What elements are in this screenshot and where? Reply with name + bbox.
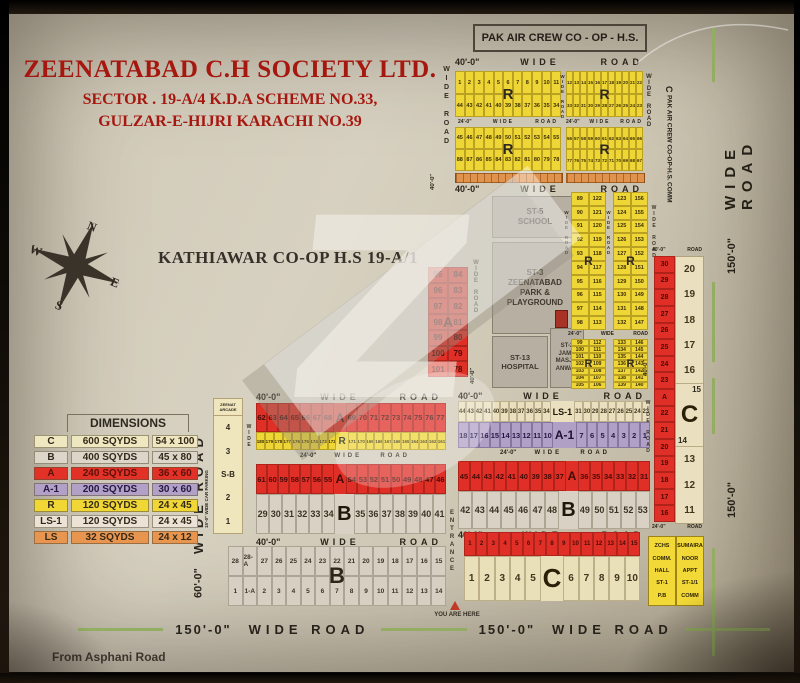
plot-cell: 65 bbox=[629, 127, 636, 149]
plot-cell: 133 bbox=[613, 339, 631, 346]
plot-cell: 74 bbox=[587, 149, 594, 171]
block-letter: B bbox=[559, 491, 577, 529]
text-line: ST-1 bbox=[649, 580, 675, 586]
plot-cell: 13 bbox=[676, 447, 703, 472]
plot-cell: 17 bbox=[469, 422, 480, 448]
plot-row: 5657585960616263646566 bbox=[566, 127, 643, 149]
plot-cell: 95 bbox=[428, 267, 448, 283]
plot-cell: 98 bbox=[571, 316, 589, 330]
road-150-vertical-top: 150'-0" bbox=[726, 214, 738, 274]
plot-cell: 56 bbox=[566, 127, 573, 149]
road-word: ROAD bbox=[535, 119, 558, 125]
plot-cell: 172 bbox=[328, 432, 337, 450]
comm-text: PAK AIR CREW CO-OP-H.S. bbox=[666, 95, 673, 181]
plot-cell: 41 bbox=[506, 461, 518, 491]
r-quadrant-1: 89909192939495969798 1221211201191181171… bbox=[571, 192, 606, 330]
plot-cell: 66 bbox=[300, 403, 311, 432]
text-line: ST-5 bbox=[527, 207, 544, 217]
plot-14: 14 bbox=[678, 436, 687, 445]
plot-cell: 19 bbox=[615, 71, 622, 94]
road-dim-vertical-rc: 40'-0" bbox=[643, 340, 649, 376]
plot-cell: 49 bbox=[402, 464, 413, 494]
plot-cell: 62 bbox=[608, 127, 615, 149]
plot-cell: 44 bbox=[487, 491, 501, 529]
plot-cell: 129 bbox=[613, 275, 631, 289]
wide-road-vertical-big: WIDE ROAD bbox=[722, 70, 756, 210]
plot-cell: 57 bbox=[300, 464, 311, 494]
road-dash bbox=[712, 548, 715, 656]
plot-cell: 40 bbox=[518, 461, 530, 491]
plot-cell: 48 bbox=[413, 464, 424, 494]
plot-cell: 5 bbox=[597, 422, 608, 448]
plot-cell: 82 bbox=[448, 298, 468, 314]
plot-cell: 64 bbox=[622, 127, 629, 149]
road-label-24-1: 24'-0" WIDE ROAD bbox=[458, 119, 558, 125]
legend-code: R bbox=[34, 499, 68, 512]
plot-cell: 16 bbox=[654, 505, 675, 522]
frame-bottom bbox=[0, 673, 800, 683]
road-dim: 24'-0" bbox=[458, 119, 472, 125]
frame-right bbox=[794, 0, 800, 683]
plot-cell: 24 bbox=[301, 546, 316, 576]
plot-cell: 29 bbox=[654, 273, 675, 290]
r-block-2: 1213141516171819202122 33323130292827262… bbox=[566, 71, 643, 117]
plot-cell: 58 bbox=[580, 127, 587, 149]
plot-cell: 18 bbox=[608, 71, 615, 94]
plot-cell: 35 bbox=[354, 494, 367, 534]
plot-cell: 121 bbox=[589, 206, 607, 220]
plot-cell: 8 bbox=[522, 71, 532, 94]
road-word: WIDE bbox=[601, 331, 614, 337]
plot-cell: 177 bbox=[283, 432, 292, 450]
plot-cell: 41 bbox=[484, 94, 494, 117]
plot-cell: 88 bbox=[455, 149, 465, 171]
plot-cell: 118 bbox=[589, 247, 607, 261]
plot-cell: 13 bbox=[417, 576, 432, 606]
road-label-24-q: 24'-0" WIDE ROAD bbox=[568, 331, 648, 337]
plot-cell: 38 bbox=[513, 94, 523, 117]
legend-area: 400 SQYDS bbox=[71, 451, 149, 464]
plot-cell: 147 bbox=[631, 316, 649, 330]
road-150-vertical-bottom: 150'-0" bbox=[726, 448, 738, 518]
plot-cell: 55 bbox=[322, 464, 333, 494]
plot-cell: 171 bbox=[348, 432, 357, 450]
plot-row: 678910 bbox=[563, 556, 640, 601]
plot-cell: 61 bbox=[256, 464, 267, 494]
road-dim: 24'-0" bbox=[566, 119, 580, 125]
text-line: ST-3 bbox=[527, 268, 544, 278]
plot-cell: 140 bbox=[631, 382, 649, 389]
road-word: ROAD bbox=[580, 450, 610, 456]
road-dim: 150'-0" bbox=[479, 622, 536, 637]
plot-cell: 23 bbox=[636, 94, 643, 117]
legend-title: DIMENSIONS bbox=[67, 414, 189, 432]
plot-cell: 19 bbox=[676, 282, 703, 307]
plot-cell: 16 bbox=[479, 422, 490, 448]
legend-row-ls: LS 32 SQYDS 24 x 12 bbox=[34, 531, 222, 544]
block-letter: R bbox=[336, 432, 347, 450]
you-are-here-marker-icon bbox=[450, 601, 460, 610]
plot-15: 15 bbox=[692, 385, 701, 394]
plot-cell: 27 bbox=[654, 306, 675, 323]
plot-cell: 94 bbox=[571, 261, 589, 275]
plot-cell: 25 bbox=[286, 546, 301, 576]
plot-cell: 54 bbox=[346, 464, 357, 494]
plot-cell: 136 bbox=[613, 360, 631, 367]
plot-cell: 151 bbox=[631, 261, 649, 275]
plot-cell: 7 bbox=[576, 422, 587, 448]
block-letter: A bbox=[334, 464, 347, 494]
plot-cell: 33 bbox=[566, 94, 573, 117]
plot-cell: 35 bbox=[534, 401, 542, 422]
block-letter: B bbox=[335, 494, 353, 534]
plot-cell: 49 bbox=[578, 491, 592, 529]
plot-cell: 20 bbox=[622, 71, 629, 94]
road-label-24-cr: 24'-0" WIDE ROAD bbox=[500, 450, 610, 456]
plot-cell: 150 bbox=[631, 275, 649, 289]
plot-cell: 10 bbox=[570, 532, 582, 556]
road-word: WIDE bbox=[534, 450, 562, 456]
plot-cell: 22 bbox=[654, 406, 675, 423]
plot-cell: 135 bbox=[613, 353, 631, 360]
plot-row: 42434445464748 bbox=[458, 491, 559, 529]
plot-cell: 59 bbox=[587, 127, 594, 149]
plot-cell: 162 bbox=[428, 432, 437, 450]
plot-cell: 21 bbox=[344, 546, 359, 576]
road-vertical-q-mid: WIDE ROAD bbox=[606, 210, 611, 320]
plot-cell: 43 bbox=[465, 94, 475, 117]
plot-cell: 90 bbox=[571, 206, 589, 220]
road-dim-vertical-a: 40'-0" bbox=[470, 348, 476, 384]
plot-cell: 3 bbox=[618, 422, 629, 448]
road-label-top: 40'-0" WIDE ROAD bbox=[455, 57, 643, 67]
legend-size: 30 x 60 bbox=[152, 483, 198, 496]
plot-cell: 97 bbox=[428, 298, 448, 314]
plot-cell: 96 bbox=[571, 289, 589, 303]
plot-cell: 17 bbox=[601, 71, 608, 94]
plot-row: 171170169168167166165164163162161 bbox=[348, 432, 446, 450]
plot-cell: 83 bbox=[448, 283, 468, 299]
you-are-here-label: YOU ARE HERE bbox=[422, 612, 492, 618]
plot-cell: 4 bbox=[484, 71, 494, 94]
comm-c: C bbox=[664, 86, 674, 93]
plot-cell: 84 bbox=[494, 149, 504, 171]
plot-cell: 23 bbox=[315, 546, 330, 576]
plot-cell: 26 bbox=[272, 546, 287, 576]
plot-cell: 123 bbox=[613, 192, 631, 206]
road-dim: 40'-0" bbox=[458, 391, 482, 401]
plot-cell: 126 bbox=[613, 233, 631, 247]
legend-row-a1: A-1 200 SQYDS 30 x 60 bbox=[34, 483, 222, 496]
plot-cell: 104 bbox=[571, 375, 589, 382]
road-dim: 150'-0" bbox=[175, 622, 232, 637]
legend-code: LS bbox=[34, 531, 68, 544]
plot-cell: 173 bbox=[319, 432, 328, 450]
plot-cell: 13 bbox=[511, 422, 522, 448]
plot-cell: 63 bbox=[615, 127, 622, 149]
road-dim: 40'-0" bbox=[455, 184, 479, 194]
legend-code: A bbox=[34, 467, 68, 480]
plot-cell: 56 bbox=[311, 464, 322, 494]
r-block-4: 5657585960616263646566 77767574737271706… bbox=[566, 127, 643, 171]
plot-cell: 179 bbox=[265, 432, 274, 450]
plot-cell: 108 bbox=[589, 368, 607, 375]
road-word: WIDE bbox=[523, 391, 563, 401]
r-quadrant-3: 99100101102103104105 1121111101091081071… bbox=[571, 339, 606, 389]
plot-cell: 3 bbox=[495, 556, 510, 601]
plot-cell: 125 bbox=[613, 220, 631, 234]
plot-cell: 122 bbox=[589, 192, 607, 206]
plot-cell: 79 bbox=[542, 149, 552, 171]
plot-cell: 9 bbox=[609, 556, 624, 601]
from-asphani-road: From Asphani Road bbox=[52, 650, 166, 664]
plot-row: 7654321 bbox=[576, 422, 650, 448]
road-word: ROAD bbox=[633, 331, 648, 337]
plot-cell: 28 bbox=[599, 401, 607, 422]
plot-cell: 52 bbox=[368, 464, 379, 494]
plot-cell: 67 bbox=[311, 403, 322, 432]
plot-cell: 15 bbox=[587, 71, 594, 94]
plot-cell: 43 bbox=[466, 401, 474, 422]
plot-cell: 100 bbox=[571, 346, 589, 353]
c-label-cell: 15 C 14 bbox=[676, 383, 703, 447]
plot-cell: 77 bbox=[435, 403, 446, 432]
plot-cell: 99 bbox=[571, 339, 589, 346]
plot-cell: 14 bbox=[500, 422, 511, 448]
road-vertical-mid: WIDE ROAD bbox=[560, 74, 565, 164]
plot-cell: 29 bbox=[591, 401, 599, 422]
plot-col: 133134135136137138139 bbox=[613, 339, 631, 389]
plot-cell: 180 bbox=[256, 432, 265, 450]
road-word: WIDE bbox=[589, 119, 610, 125]
plot-cell: 4 bbox=[499, 532, 511, 556]
plot-cell: 34 bbox=[602, 461, 614, 491]
road-vertical-right: WIDE ROAD bbox=[646, 74, 652, 170]
block-letter: C bbox=[681, 401, 698, 429]
plot-cell: 6 bbox=[563, 556, 578, 601]
a2-strip: 454443424140393837 A 363534333231 bbox=[458, 461, 650, 491]
plot-cell: 38 bbox=[393, 494, 406, 534]
plot-cell: 1 bbox=[464, 556, 479, 601]
plot-cell: 30 bbox=[654, 256, 675, 273]
plot-cell: 132 bbox=[613, 316, 631, 330]
road-150-label-1: 150'-0" WIDE ROAD bbox=[175, 622, 369, 637]
plot-cell: 30 bbox=[587, 94, 594, 117]
plot-cell: 113 bbox=[589, 316, 607, 330]
road-dim: 24'-0" bbox=[500, 450, 516, 456]
plot-cell: 50 bbox=[391, 464, 402, 494]
plot-cell: 166 bbox=[392, 432, 401, 450]
plot-cell: 12 bbox=[566, 71, 573, 94]
block-letter: A-1 bbox=[553, 422, 576, 448]
plot-row: 11-A234567891011121314 bbox=[228, 576, 446, 606]
plot-row: 454443424140393837 bbox=[458, 461, 566, 491]
plot-row: 4546474849505152535455 bbox=[455, 127, 561, 149]
plot-cell: 91 bbox=[571, 220, 589, 234]
location-subtitle: GULZAR-E-HIJRI KARACHI NO.39 bbox=[10, 113, 450, 131]
plot-cell: 40 bbox=[420, 494, 433, 534]
plot-cell: 102 bbox=[571, 360, 589, 367]
plot-cell: 29 bbox=[594, 94, 601, 117]
plot-cell: 14 bbox=[580, 71, 587, 94]
plot-cell: 101 bbox=[571, 353, 589, 360]
block-letter: C bbox=[541, 556, 564, 601]
plot-cell: 68 bbox=[322, 403, 333, 432]
plot-cell: 110 bbox=[589, 353, 607, 360]
plot-cell: 10 bbox=[542, 71, 552, 94]
plot-cell: 9 bbox=[558, 532, 570, 556]
plot-row: 697071727374757677 bbox=[346, 403, 446, 432]
plot-cell: 8 bbox=[344, 576, 359, 606]
plot-cell: 52 bbox=[522, 127, 532, 149]
road-dim-vertical: 40'-0" bbox=[430, 150, 436, 190]
plot-cell: 66 bbox=[636, 127, 643, 149]
plot-cell: 6 bbox=[315, 576, 330, 606]
plot-cell: 11 bbox=[676, 498, 703, 523]
plot-cell: 23 bbox=[654, 372, 675, 389]
road-word: ROAD bbox=[380, 453, 410, 459]
plot-cell: 39 bbox=[503, 94, 513, 117]
plot-cell: 127 bbox=[613, 247, 631, 261]
legend-row-a: A 240 SQYDS 36 x 60 bbox=[34, 467, 222, 480]
plot-cell: 22 bbox=[330, 546, 345, 576]
plot-row: 363534333231 bbox=[578, 461, 650, 491]
plot-cell: 14 bbox=[431, 576, 446, 606]
road-dim: 60'-0" bbox=[193, 568, 205, 598]
plot-cell: 13 bbox=[573, 71, 580, 94]
plot-cell: 52 bbox=[621, 491, 635, 529]
plot-cell: 103 bbox=[571, 368, 589, 375]
plot-cell: 27 bbox=[608, 401, 616, 422]
plot-cell: 178 bbox=[274, 432, 283, 450]
plot-cell: 3 bbox=[272, 576, 287, 606]
plot-cell: 10 bbox=[373, 576, 388, 606]
plot-cell: 131 bbox=[613, 302, 631, 316]
plot-row: 313029282726252423 bbox=[574, 401, 650, 422]
plot-cell: 7 bbox=[330, 576, 345, 606]
plot-cell: 19 bbox=[373, 546, 388, 576]
road-word: WIDE ROAD bbox=[552, 622, 673, 637]
plot-cell: 32 bbox=[573, 94, 580, 117]
road-dash bbox=[685, 628, 770, 631]
plot-row: 181716151413121110 bbox=[458, 422, 553, 448]
plot-cell: 1 bbox=[455, 71, 465, 94]
plot-cell: 39 bbox=[530, 461, 542, 491]
plot-cell: 12 bbox=[593, 532, 605, 556]
legend-area: 240 SQYDS bbox=[71, 467, 149, 480]
plot-cell: 101 bbox=[428, 361, 448, 377]
plot-cell: 5 bbox=[494, 71, 504, 94]
plot-cell: 2 bbox=[479, 556, 494, 601]
road-dim: 24'-0" bbox=[300, 453, 316, 459]
plot-cell: 18 bbox=[458, 422, 469, 448]
plot-cell: 46 bbox=[516, 491, 530, 529]
plot-cell: 62 bbox=[256, 403, 267, 432]
plot-cell: 54 bbox=[542, 127, 552, 149]
b-strip-left: 293031323334 B 35363738394041 bbox=[256, 494, 446, 534]
plot-row: 4443424140393837363534 bbox=[458, 401, 551, 422]
plot-cell: 80 bbox=[448, 330, 468, 346]
road-vertical-q-left: WIDE ROAD bbox=[564, 210, 569, 320]
plot-cell: 10 bbox=[625, 556, 640, 601]
plot-cell: 30 bbox=[269, 494, 282, 534]
plot-cell: 81 bbox=[522, 149, 532, 171]
plot-cell: 99 bbox=[428, 330, 448, 346]
plot-cell: 164 bbox=[410, 432, 419, 450]
plot-cell: 12 bbox=[521, 422, 532, 448]
plot-cell: 154 bbox=[631, 220, 649, 234]
text-line: APPT bbox=[677, 568, 703, 574]
legend-area: 32 SQYDS bbox=[71, 531, 149, 544]
plot-cell: 19 bbox=[654, 456, 675, 473]
comm-text2: COMM bbox=[666, 182, 673, 203]
plot-cell: 10 bbox=[542, 422, 553, 448]
ls1-strip: 4443424140393837363534 LS-1 313029282726… bbox=[458, 401, 650, 422]
plot-cell: 44 bbox=[470, 461, 482, 491]
a1-strip: 181716151413121110 A-1 7654321 bbox=[458, 422, 650, 448]
plot-cell: 24 bbox=[633, 401, 641, 422]
plot-cell: 50 bbox=[503, 127, 513, 149]
sector-subtitle: SECTOR . 19-A/4 K.D.A SCHEME NO.33, bbox=[10, 91, 450, 109]
plot-cell: 45 bbox=[455, 127, 465, 149]
plot-cell: 106 bbox=[589, 382, 607, 389]
road-dash bbox=[712, 282, 715, 362]
r-block-1: 1234567891011 4443424140393837363534 R bbox=[455, 71, 561, 117]
plot-cell: 12 bbox=[402, 576, 417, 606]
road-dim: 24'-0" bbox=[568, 331, 582, 337]
entrance-label: ENTRANCE bbox=[449, 510, 455, 602]
plot-cell: 36 bbox=[578, 461, 590, 491]
plot-cell: 87 bbox=[465, 149, 475, 171]
road-label-cr-top: 40'-0" WIDE ROAD bbox=[458, 391, 646, 401]
ls-strip-1 bbox=[455, 173, 563, 183]
legend-row-r: R 120 SQYDS 24 x 45 bbox=[34, 499, 222, 512]
plot-cell: 36 bbox=[367, 494, 380, 534]
r-quadrant-2: 123124125126127128129130131132 156155154… bbox=[613, 192, 648, 330]
plot-row: 7776757473727170696867 bbox=[566, 149, 643, 171]
plot-cell: 39 bbox=[406, 494, 419, 534]
plot-cell: 37 bbox=[517, 401, 525, 422]
plot-cell: 86 bbox=[474, 149, 484, 171]
plot-cell: 63 bbox=[267, 403, 278, 432]
plot-cell: 170 bbox=[357, 432, 366, 450]
legend-size: 24 x 12 bbox=[152, 531, 198, 544]
plot-cell: 6 bbox=[587, 422, 598, 448]
plot-col: 2019181716 bbox=[676, 257, 703, 383]
plot-cell: 76 bbox=[424, 403, 435, 432]
road-vertical-sb: WIDE bbox=[246, 424, 252, 484]
plot-cell: 18 bbox=[654, 472, 675, 489]
plot-cell: 137 bbox=[613, 368, 631, 375]
legend-row-b: B 400 SQYDS 45 x 80 bbox=[34, 451, 222, 464]
plot-cell: 98 bbox=[428, 314, 448, 330]
text-line: COMM. bbox=[649, 556, 675, 562]
plot-cell: A bbox=[654, 389, 675, 406]
plot-cell: 161 bbox=[437, 432, 446, 450]
text-line: SCHOOL bbox=[518, 217, 552, 227]
plot-cell: 7 bbox=[513, 71, 523, 94]
c-block: 12345 C 678910 bbox=[464, 556, 640, 601]
plot-cell: 45 bbox=[501, 491, 515, 529]
plot-cell: 93 bbox=[571, 247, 589, 261]
plot-cell: 35 bbox=[542, 94, 552, 117]
plot-row: 293031323334 bbox=[256, 494, 335, 534]
plot-cell: 34 bbox=[542, 401, 550, 422]
legend-area: 120 SQYDS bbox=[71, 515, 149, 528]
plot-cell: 16 bbox=[594, 71, 601, 94]
plot-cell: 53 bbox=[357, 464, 368, 494]
plot-row: 1213141516171819202122 bbox=[566, 71, 643, 94]
